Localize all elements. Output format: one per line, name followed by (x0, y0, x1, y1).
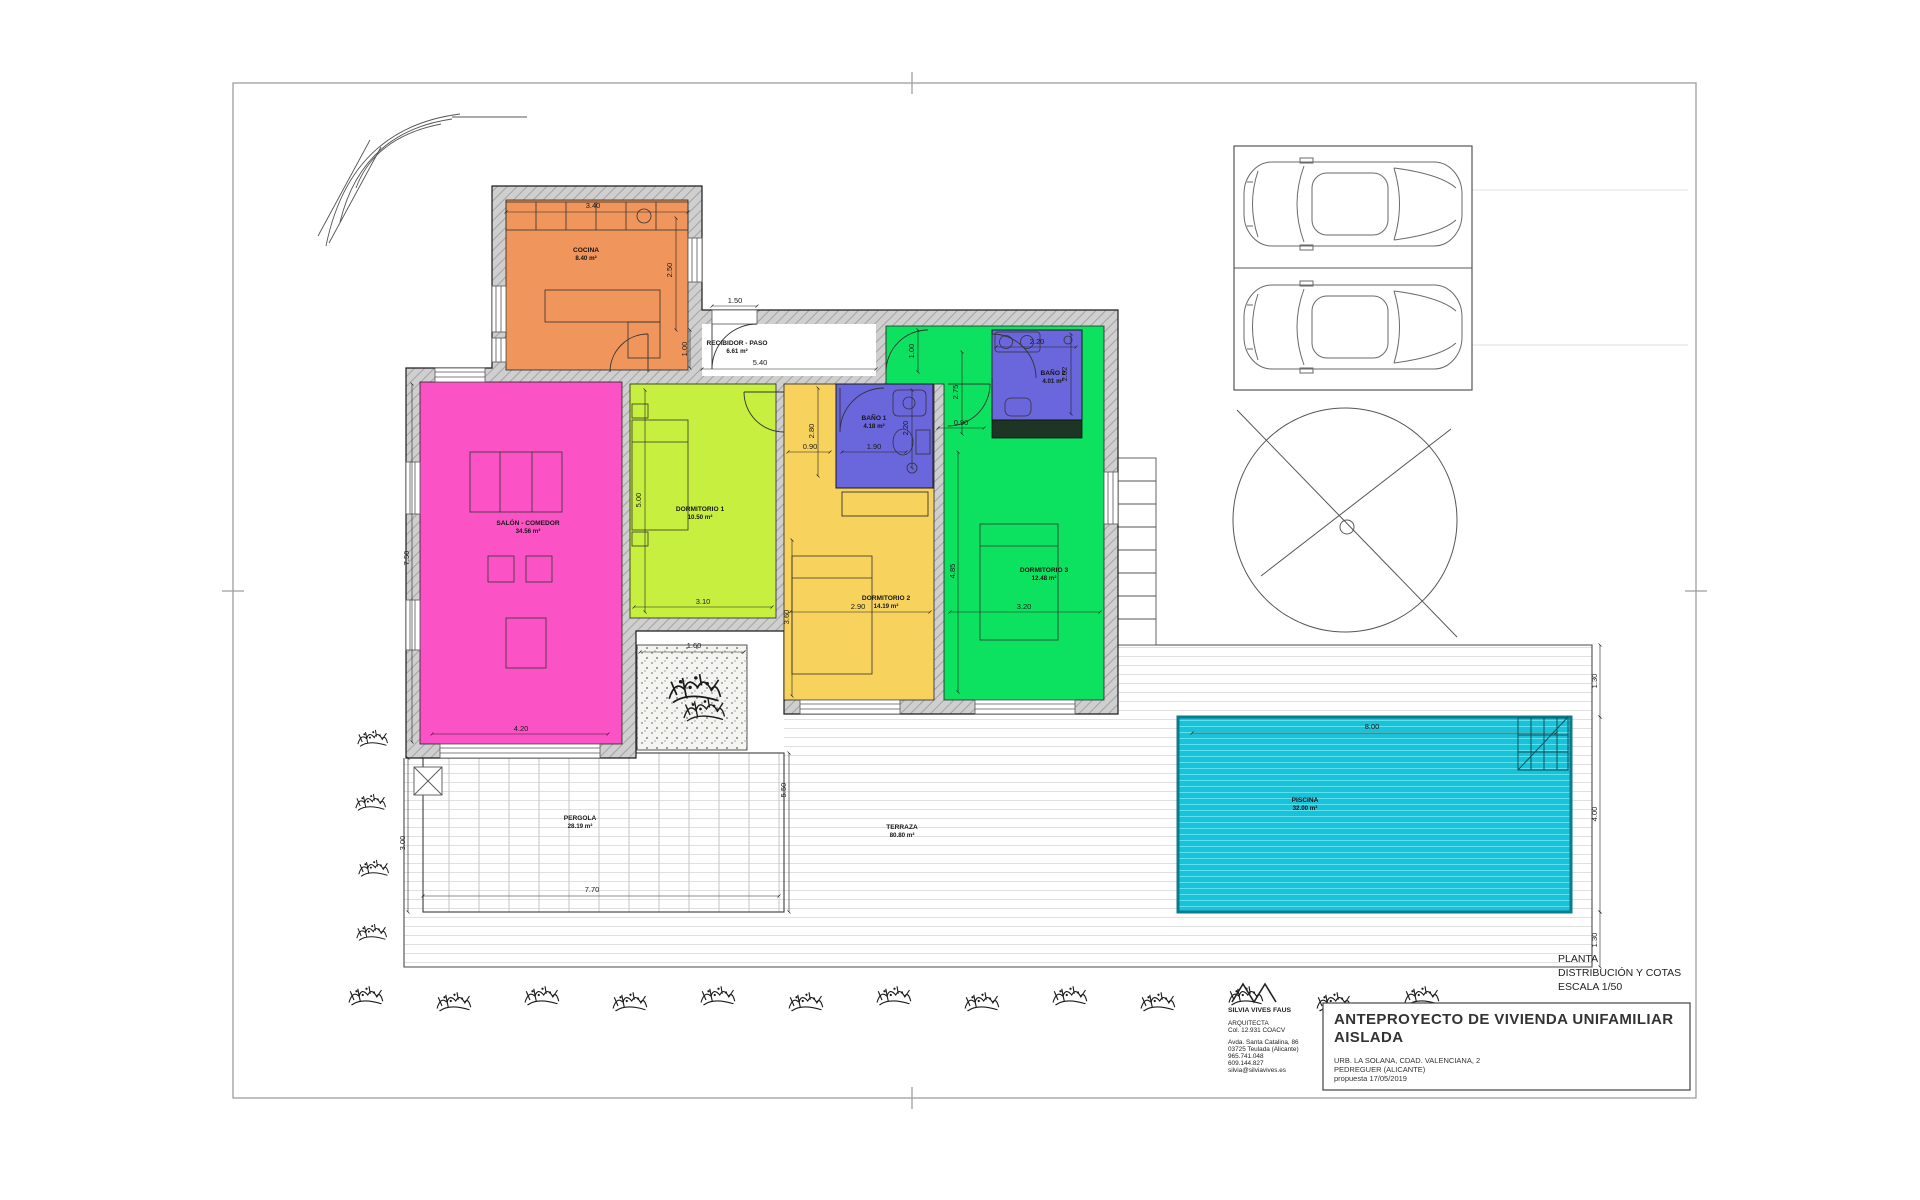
architect-phone1: 965.741.048 (1228, 1053, 1264, 1060)
architect-phone2: 609.144.827 (1228, 1060, 1264, 1067)
dimension-label: 5.40 (753, 358, 768, 367)
exterior-stairs (1118, 458, 1156, 645)
view-title-line2: DISTRIBUCIÓN Y COTAS (1558, 966, 1681, 979)
dimension-label: 8.00 (1365, 722, 1380, 731)
view-title: PLANTA DISTRIBUCIÓN Y COTAS ESCALA 1/50 (1558, 953, 1681, 993)
plant-scribble (877, 986, 911, 1005)
plant-scribble (1141, 992, 1175, 1011)
dimension-label: 2.20 (901, 421, 910, 436)
room-label-area: 10.50 m² (688, 514, 713, 521)
room-label-name: RECIBIDOR - PASO (706, 340, 767, 347)
room-label-name: SALÓN - COMEDOR (496, 518, 560, 527)
dimension-label: 2.50 (665, 263, 674, 278)
dimension-label: 2.80 (807, 424, 816, 439)
plant-scribble (1405, 986, 1439, 1005)
room-living (420, 382, 622, 744)
room-label-name: TERRAZA (886, 824, 918, 831)
dimension-label: 2.75 (951, 385, 960, 400)
wardrobe-dark (992, 420, 1082, 438)
drawing-sheet: 3.402.501.501.005.407.504.205.003.102.80… (0, 0, 1920, 1200)
room-label-name: BAÑO 2 (1041, 368, 1066, 377)
dimension-label: 1.50 (728, 296, 743, 305)
room-label-area: 6.61 m² (726, 348, 747, 355)
dimension-label: 3.20 (1017, 602, 1032, 611)
dimension-label: 1.00 (907, 344, 916, 359)
view-title-line1: PLANTA (1558, 953, 1598, 965)
dimension-label: 7.50 (402, 551, 411, 566)
dimension-label: 1.60 (687, 641, 702, 650)
project-address-line2: PEDREGUER (ALICANTE) (1334, 1065, 1426, 1074)
view-title-line3: ESCALA 1/50 (1558, 981, 1622, 993)
room-label-area: 8.40 m² (575, 255, 596, 262)
architect-block: SILVIA VIVES FAUS ARQUITECTA Col. 12.931… (1228, 984, 1299, 1074)
room-label-area: 4.18 m² (863, 423, 884, 430)
dimension-label: 0.90 (803, 442, 818, 451)
plant-scribble (613, 992, 647, 1011)
dimension-label: 2.90 (851, 602, 866, 611)
dimension-label: 1.30 (1590, 933, 1599, 948)
room-label-name: DORMITORIO 1 (676, 506, 725, 513)
dimension-label: 4.00 (1590, 807, 1599, 822)
dimension-label: 4.85 (948, 564, 957, 579)
dimension-label: 3.10 (696, 597, 711, 606)
architect-license: Col. 12.931 COACV (1228, 1027, 1286, 1034)
room-label-name: COCINA (573, 247, 599, 254)
plant-scribble (1053, 986, 1087, 1005)
architect-address1: Avda. Santa Catalina, 86 (1228, 1039, 1299, 1046)
plant-scribble (701, 986, 735, 1005)
room-label-area: 28.19 m² (568, 823, 593, 830)
building (406, 186, 1118, 758)
room-label-area: 4.01 m² (1042, 378, 1063, 385)
dimension-label: 1.90 (867, 442, 882, 451)
dimension-label: 3.60 (782, 610, 791, 625)
room-kitchen (506, 200, 688, 370)
plant-scribble (965, 992, 999, 1011)
title-block: ANTEPROYECTO DE VIVIENDA UNIFAMILIAR AIS… (1323, 1003, 1690, 1090)
room-label-name: DORMITORIO 3 (1020, 567, 1069, 574)
dimension-label: 2.20 (1030, 337, 1045, 346)
room-label-area: 34.56 m² (516, 528, 541, 535)
architect-address2: 03725 Teulada (Alicante) (1228, 1046, 1299, 1053)
plant-scribble (356, 794, 386, 811)
dimension-label: 7.70 (585, 885, 600, 894)
project-address-line3: propuesta 17/05/2019 (1334, 1074, 1407, 1083)
room-bath1 (836, 384, 933, 488)
dimension-label: 3.40 (586, 201, 601, 210)
room-label-area: 12.48 m² (1032, 575, 1057, 582)
pergola (423, 753, 784, 912)
dimension-label: 4.20 (514, 724, 529, 733)
tree-symbol (1233, 408, 1457, 637)
architect-name: SILVIA VIVES FAUS (1228, 1007, 1292, 1014)
room-label-area: 14.19 m² (874, 603, 899, 610)
dimension-label: 5.00 (634, 493, 643, 508)
plant-scribble (359, 860, 389, 877)
dimension-label: 5.50 (779, 783, 788, 798)
room-label-area: 80.80 m² (890, 832, 915, 839)
plant-scribble (358, 730, 388, 747)
dimension-label: 0.90 (954, 418, 969, 427)
project-title-line2: AISLADA (1334, 1029, 1403, 1046)
dimension-label: 3.00 (398, 836, 407, 851)
architect-title: ARQUITECTA (1228, 1020, 1269, 1027)
room-label-name: DORMITORIO 2 (862, 595, 911, 602)
plant-scribble (437, 992, 471, 1011)
room-label-name: PISCINA (1292, 797, 1319, 804)
floor-plan-canvas: 3.402.501.501.005.407.504.205.003.102.80… (0, 0, 1920, 1200)
dimension-label: 1.30 (1590, 674, 1599, 689)
room-label-area: 32.00 m² (1293, 805, 1318, 812)
parking-area (1234, 146, 1688, 390)
project-address-line1: URB. LA SOLANA, CDAD. VALENCIANA, 2 (1334, 1056, 1480, 1065)
plant-scribble (349, 986, 383, 1005)
plant-scribble (789, 992, 823, 1011)
room-label-name: BAÑO 1 (862, 413, 887, 422)
plant-scribble (525, 986, 559, 1005)
plant-scribble (357, 924, 387, 941)
architect-email: silvia@silviavives.es (1228, 1067, 1286, 1074)
project-title-line1: ANTEPROYECTO DE VIVIENDA UNIFAMILIAR (1334, 1011, 1673, 1028)
room-label-name: PERGOLA (564, 815, 597, 822)
dimension-label: 1.00 (680, 342, 689, 357)
swimming-pool (1178, 717, 1571, 912)
